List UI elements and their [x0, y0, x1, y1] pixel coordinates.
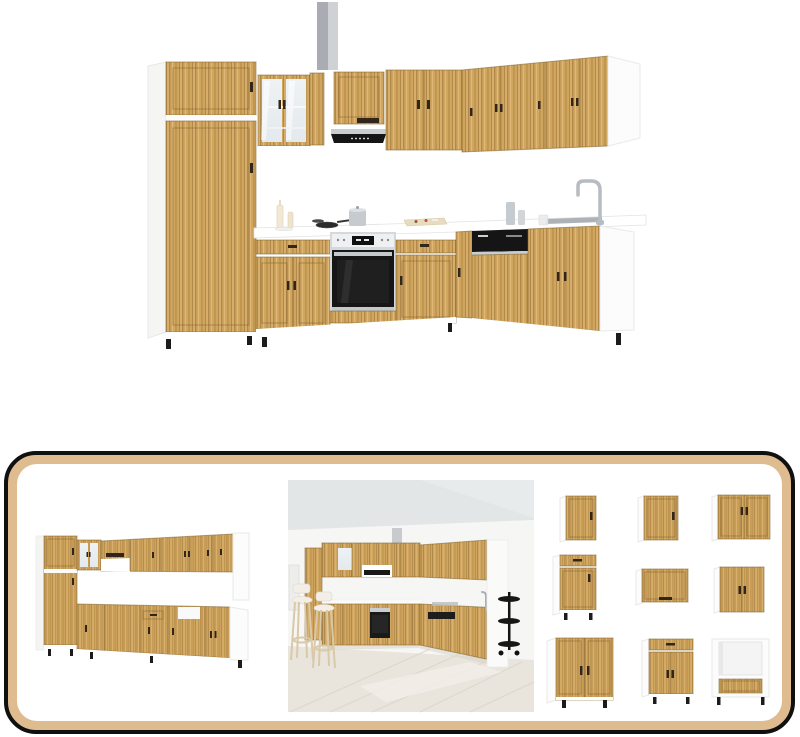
extractor-flue	[317, 2, 338, 70]
base-cabinet-left	[256, 240, 330, 329]
base-cabinets-right-arm	[456, 226, 634, 345]
base-cabinet-right	[396, 240, 456, 323]
module-base-cabinet-drawer-and-door	[553, 555, 596, 620]
module-wall-cabinet-single-door-narrow	[560, 496, 596, 542]
module-wall-cabinet-flip-up	[636, 569, 688, 605]
wall-cabinets-front	[386, 70, 462, 150]
built-in-oven	[330, 232, 396, 323]
extractor-hood	[331, 72, 386, 143]
module-base-cabinet-drawer-double-door	[642, 639, 693, 704]
glass-display-cabinet	[258, 75, 310, 150]
wall-cabinets-right-arm	[462, 53, 640, 152]
tall-pantry-cabinet	[148, 62, 256, 349]
gallery-view-lifestyle	[288, 480, 534, 712]
module-base-cabinet-double-door-wide	[547, 638, 613, 708]
product-composite-image	[0, 0, 800, 737]
module-wall-cabinet-single-door	[638, 496, 678, 542]
lifestyle-oven	[370, 608, 390, 638]
main-product-image	[148, 2, 646, 349]
module-wall-cabinet-double-door-wide	[712, 495, 770, 541]
wall-cabinet-narrow	[310, 73, 324, 145]
gallery-panel	[6, 453, 793, 732]
module-oven-housing-cabinet	[712, 639, 769, 705]
module-wall-cabinet-double-door	[714, 567, 764, 613]
gallery-view-module-grid	[547, 495, 770, 708]
dishwasher	[472, 229, 528, 325]
